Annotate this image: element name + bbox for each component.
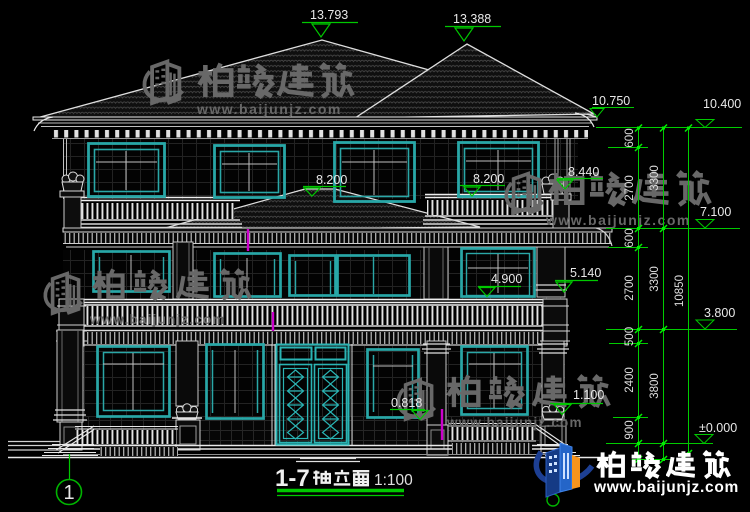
svg-text:8.200: 8.200 xyxy=(473,172,504,186)
svg-text:5.140: 5.140 xyxy=(570,266,601,280)
svg-text:1:100: 1:100 xyxy=(374,472,413,489)
svg-text:2700: 2700 xyxy=(624,175,636,201)
svg-text:3800: 3800 xyxy=(649,373,661,399)
svg-text:±0.000: ±0.000 xyxy=(699,421,737,435)
svg-text:10.750: 10.750 xyxy=(592,94,630,108)
svg-text:4.900: 4.900 xyxy=(491,272,522,286)
svg-text:10850: 10850 xyxy=(674,275,686,307)
svg-text:8.200: 8.200 xyxy=(316,173,347,187)
svg-text:600: 600 xyxy=(624,228,636,247)
svg-text:900: 900 xyxy=(624,420,636,439)
svg-text:www.baijunjz.com: www.baijunjz.com xyxy=(446,415,583,430)
svg-text:1.100: 1.100 xyxy=(573,388,604,402)
svg-text:13.793: 13.793 xyxy=(310,8,348,22)
svg-text:3300: 3300 xyxy=(649,165,661,191)
svg-text:0.818: 0.818 xyxy=(391,396,422,410)
svg-text:www.baijunjz.com: www.baijunjz.com xyxy=(545,212,691,228)
svg-text:1-7: 1-7 xyxy=(275,465,310,492)
svg-text:10.400: 10.400 xyxy=(703,97,741,111)
svg-text:600: 600 xyxy=(624,128,636,147)
svg-text:www.baijunjz.com: www.baijunjz.com xyxy=(89,312,226,327)
svg-text:3.800: 3.800 xyxy=(704,306,735,320)
svg-text:2400: 2400 xyxy=(624,367,636,393)
svg-text:www.baijunjz.com: www.baijunjz.com xyxy=(593,479,739,496)
svg-text:500: 500 xyxy=(624,327,636,346)
svg-text:7.100: 7.100 xyxy=(700,205,731,219)
svg-text:3300: 3300 xyxy=(649,266,661,292)
svg-text:www.baijunjz.com: www.baijunjz.com xyxy=(196,101,342,117)
svg-text:2700: 2700 xyxy=(624,275,636,301)
svg-text:1: 1 xyxy=(63,482,74,504)
svg-text:8.440: 8.440 xyxy=(568,165,599,179)
svg-text:13.388: 13.388 xyxy=(453,12,491,26)
